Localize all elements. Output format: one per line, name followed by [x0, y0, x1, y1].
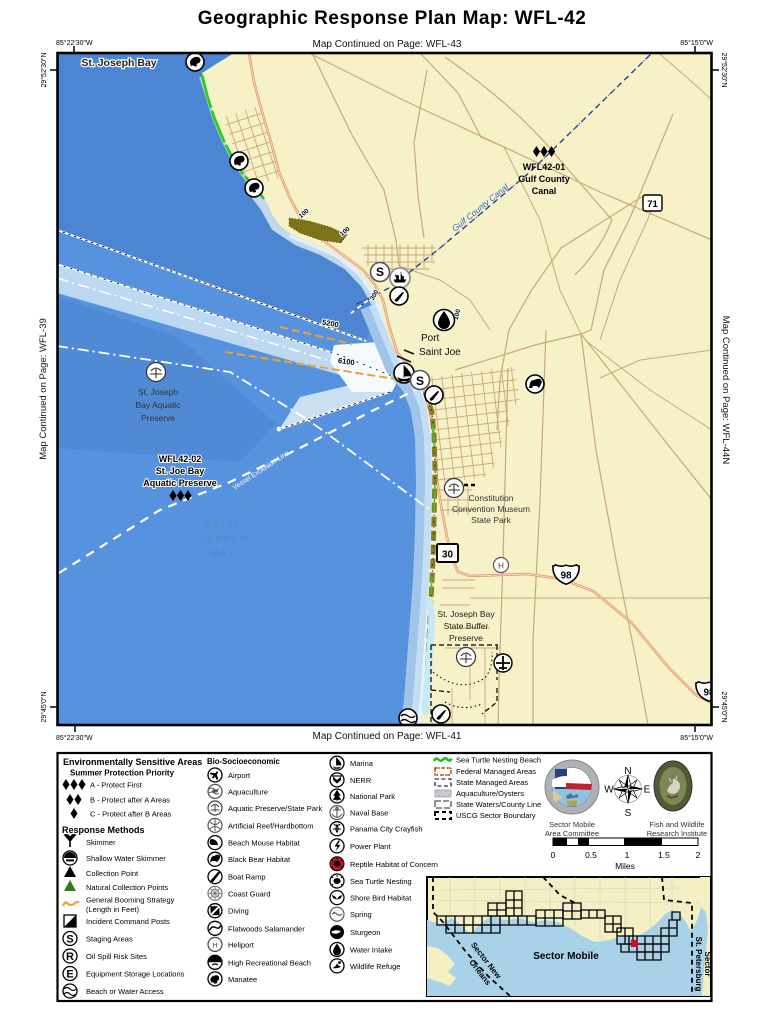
svg-text:Staging Areas: Staging Areas	[86, 935, 133, 944]
svg-text:State Waters/County Line: State Waters/County Line	[456, 800, 541, 809]
svg-text:E: E	[644, 785, 651, 796]
svg-text:St. Joseph: St. Joseph	[138, 387, 178, 397]
svg-text:Bay: Bay	[211, 548, 237, 559]
svg-text:Boat Ramp: Boat Ramp	[228, 873, 266, 882]
svg-text:St. Joe Bay: St. Joe Bay	[156, 466, 205, 476]
svg-text:29°45'0"N: 29°45'0"N	[720, 691, 728, 722]
svg-text:Summer Protection Priority: Summer Protection Priority	[70, 769, 175, 778]
svg-text:B - Protect after A Areas: B - Protect after A Areas	[90, 796, 170, 805]
svg-text:Research Institute: Research Institute	[647, 829, 707, 838]
svg-text:Convention Museum: Convention Museum	[452, 504, 530, 514]
svg-text:98: 98	[560, 571, 572, 582]
svg-text:S: S	[66, 934, 73, 946]
svg-text:C - Protect after B Areas: C - Protect after B Areas	[90, 810, 172, 819]
svg-text:State Park: State Park	[471, 515, 511, 525]
svg-text:WFL42-02: WFL42-02	[159, 454, 202, 464]
svg-text:Wildlife Refuge: Wildlife Refuge	[350, 962, 400, 971]
svg-text:Power Plant: Power Plant	[350, 842, 391, 851]
svg-text:St. Petersburg: St. Petersburg	[694, 937, 703, 992]
svg-text:Map Continued on Page: WFL-44N: Map Continued on Page: WFL-44N	[720, 316, 731, 465]
svg-text:Diving: Diving	[228, 907, 249, 916]
svg-text:National Park: National Park	[350, 792, 395, 801]
svg-text:USCG Sector Boundary: USCG Sector Boundary	[456, 811, 536, 820]
svg-text:Geographic Response Plan Map:: Geographic Response Plan Map: WFL-42	[198, 8, 587, 29]
svg-text:Saint Joe: Saint Joe	[419, 347, 461, 358]
svg-text:Panama City Crayfish: Panama City Crayfish	[350, 825, 423, 834]
svg-text:Flatwoods Salamander: Flatwoods Salamander	[228, 924, 305, 933]
svg-text:WFL42-01: WFL42-01	[523, 162, 566, 172]
svg-text:State Managed Areas: State Managed Areas	[456, 778, 528, 787]
svg-text:High Recreational Beach: High Recreational Beach	[228, 958, 311, 967]
svg-text:29°52'30"N: 29°52'30"N	[40, 52, 48, 87]
svg-text:Miles: Miles	[615, 861, 635, 871]
svg-text:Airport: Airport	[228, 771, 251, 780]
svg-text:Water Intake: Water Intake	[350, 946, 392, 955]
svg-text:Spring: Spring	[350, 910, 372, 919]
svg-text:Aquatic Preserve/State Park: Aquatic Preserve/State Park	[228, 804, 322, 813]
svg-text:Black Bear Habitat: Black Bear Habitat	[228, 855, 291, 864]
svg-text:Sea Turtle Nesting: Sea Turtle Nesting	[350, 877, 412, 886]
svg-text:H: H	[498, 562, 504, 571]
svg-text:Beach or Water Access: Beach or Water Access	[86, 987, 164, 996]
svg-text:St. Joseph Bay: St. Joseph Bay	[437, 609, 495, 619]
svg-text:General Booming Strategy: General Booming Strategy	[86, 896, 175, 905]
svg-text:Aquaculture: Aquaculture	[228, 787, 268, 796]
svg-text:Bay Aquatic: Bay Aquatic	[136, 400, 182, 410]
svg-text:USCG: USCG	[568, 804, 577, 808]
svg-text:Coast Guard: Coast Guard	[228, 889, 271, 898]
svg-text:St. Joseph Bay: St. Joseph Bay	[81, 57, 156, 69]
svg-text:Naval Base: Naval Base	[350, 809, 388, 818]
svg-text:Shore Bird Habitat: Shore Bird Habitat	[350, 894, 412, 903]
svg-text:Sector Mobile: Sector Mobile	[533, 951, 599, 962]
svg-text:30: 30	[442, 550, 454, 561]
svg-text:S: S	[625, 808, 632, 819]
svg-text:Sea Turtle Nesting Beach: Sea Turtle Nesting Beach	[456, 756, 541, 765]
svg-text:Beach Mouse Habitat: Beach Mouse Habitat	[228, 839, 301, 848]
svg-text:Collection Point: Collection Point	[86, 869, 139, 878]
svg-text:0.5: 0.5	[585, 850, 597, 860]
svg-text:85°15'0"W: 85°15'0"W	[680, 734, 713, 742]
svg-text:Area Committee: Area Committee	[545, 829, 599, 838]
svg-text:E: E	[66, 969, 73, 981]
svg-text:Aquaculture/Oysters: Aquaculture/Oysters	[456, 789, 524, 798]
svg-text:N: N	[624, 766, 631, 777]
svg-text:Manatee: Manatee	[228, 975, 257, 984]
svg-text:85°22'30"W: 85°22'30"W	[56, 39, 93, 47]
svg-text:(Length in Feet): (Length in Feet)	[86, 905, 139, 914]
svg-text:S: S	[416, 374, 424, 388]
svg-text:A - Protect First: A - Protect First	[90, 781, 143, 790]
svg-text:1.5: 1.5	[658, 850, 670, 860]
svg-text:85°22'30"W: 85°22'30"W	[56, 734, 93, 742]
svg-text:R: R	[66, 951, 74, 963]
svg-text:Incident Command Posts: Incident Command Posts	[86, 917, 170, 926]
svg-text:Heliport: Heliport	[228, 940, 255, 949]
svg-text:Artificial Reef/Hardbottom: Artificial Reef/Hardbottom	[228, 821, 313, 830]
svg-text:Canal: Canal	[532, 186, 557, 196]
svg-text:Equipment Storage Locations: Equipment Storage Locations	[86, 970, 185, 979]
svg-text:Map Continued on Page: WFL-41: Map Continued on Page: WFL-41	[313, 731, 462, 742]
svg-text:Reptile Habitat of Concern: Reptile Habitat of Concern	[350, 860, 438, 869]
svg-text:Environmentally Sensitive Area: Environmentally Sensitive Areas	[63, 757, 202, 767]
svg-text:H: H	[212, 942, 217, 949]
svg-text:Bio-Socioeconomic: Bio-Socioeconomic	[207, 757, 280, 766]
svg-text:2: 2	[696, 850, 701, 860]
svg-text:Natural Collection Points: Natural Collection Points	[86, 883, 168, 892]
svg-text:Fish and Wildlife: Fish and Wildlife	[649, 820, 704, 829]
svg-text:Port: Port	[421, 333, 440, 344]
svg-text:Sector Mobile: Sector Mobile	[549, 820, 595, 829]
svg-text:Shallow Water Skimmer: Shallow Water Skimmer	[86, 854, 166, 863]
svg-text:71: 71	[647, 199, 658, 210]
svg-text:Sturgeon: Sturgeon	[350, 928, 380, 937]
svg-text:Aquatic Preserve: Aquatic Preserve	[143, 478, 217, 488]
svg-text:NERR: NERR	[350, 776, 372, 785]
svg-text:S: S	[376, 265, 384, 279]
svg-text:Federal Managed Areas: Federal Managed Areas	[456, 767, 536, 776]
svg-text:Response Methods: Response Methods	[62, 825, 145, 835]
svg-text:29°52'30"N: 29°52'30"N	[720, 52, 728, 87]
svg-text:1: 1	[625, 850, 630, 860]
svg-text:29°45'0"N: 29°45'0"N	[40, 691, 48, 722]
svg-text:Map Continued on Page: WFL-43: Map Continued on Page: WFL-43	[313, 39, 462, 50]
svg-text:W: W	[604, 785, 614, 796]
svg-text:Joseph: Joseph	[198, 533, 249, 544]
svg-text:Constitution: Constitution	[469, 493, 514, 503]
svg-text:Preserve: Preserve	[141, 413, 175, 423]
svg-text:Preserve: Preserve	[449, 633, 483, 643]
svg-text:Marina: Marina	[350, 759, 374, 768]
svg-text:Skimmer: Skimmer	[86, 838, 116, 847]
svg-text:Gulf County: Gulf County	[518, 174, 570, 184]
svg-text:Oil Spill Risk Sites: Oil Spill Risk Sites	[86, 952, 147, 961]
svg-text:Saint: Saint	[203, 519, 241, 530]
svg-text:Map Continued on Page: WFL-39: Map Continued on Page: WFL-39	[38, 318, 49, 460]
svg-text:0: 0	[551, 850, 556, 860]
svg-text:85°15'0"W: 85°15'0"W	[680, 39, 713, 47]
svg-text:State Buffer: State Buffer	[444, 621, 489, 631]
